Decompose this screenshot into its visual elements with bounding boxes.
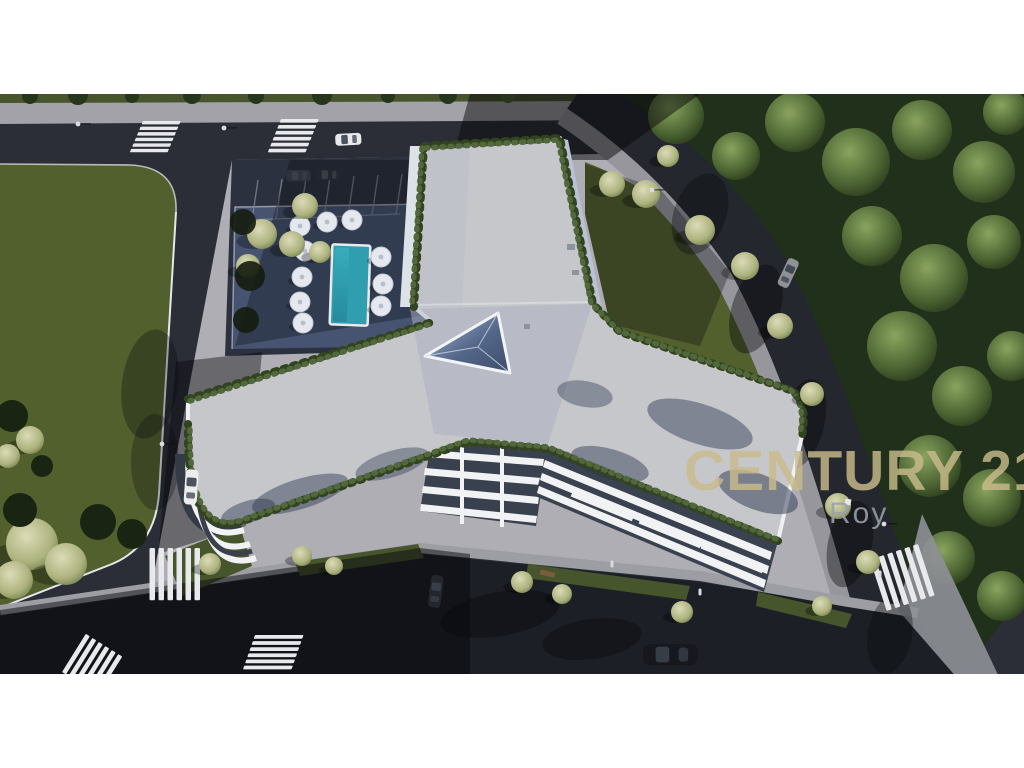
forest-tree — [953, 141, 1015, 203]
forest-tree — [822, 128, 890, 196]
aerial-render-svg — [0, 94, 1024, 674]
forest-tree — [712, 132, 760, 180]
car-dark-parking — [286, 170, 311, 181]
roof-ac-unit — [567, 244, 575, 250]
forest-tree — [892, 100, 952, 160]
balcony-divider — [500, 447, 504, 527]
car-white-left-road — [183, 469, 199, 505]
forest-tree — [900, 244, 968, 312]
dark-tree — [235, 261, 265, 291]
aerial-render-frame: CENTURY 21 Roy — [0, 0, 1024, 768]
forest-tree — [842, 206, 902, 266]
forest-tree — [765, 94, 825, 152]
forest-tree — [867, 311, 937, 381]
dark-tree — [31, 455, 53, 477]
pedestrian — [699, 589, 702, 596]
car-white-top-road — [335, 133, 362, 146]
balcony-divider — [460, 444, 464, 524]
forest-tree — [932, 366, 992, 426]
tree-shadow-lawn — [131, 414, 179, 510]
aerial-render-scene — [0, 94, 1024, 674]
dark-tree — [3, 493, 37, 527]
dark-tree — [230, 209, 256, 235]
dark-tree — [117, 519, 147, 549]
dark-tree — [80, 504, 116, 540]
pedestrian — [879, 571, 882, 578]
pool-highlight — [333, 247, 350, 321]
dark-tree — [233, 307, 259, 333]
car-dark-bottom-road — [643, 644, 698, 665]
forest-tree — [967, 215, 1021, 269]
car-dark-parking — [316, 169, 341, 180]
roof-ac-unit — [524, 324, 530, 329]
forest-tree — [963, 469, 1021, 527]
pedestrian — [611, 561, 614, 568]
roof-vent — [845, 499, 852, 506]
forest-tree — [899, 435, 961, 497]
roof-ac-unit — [572, 270, 579, 275]
